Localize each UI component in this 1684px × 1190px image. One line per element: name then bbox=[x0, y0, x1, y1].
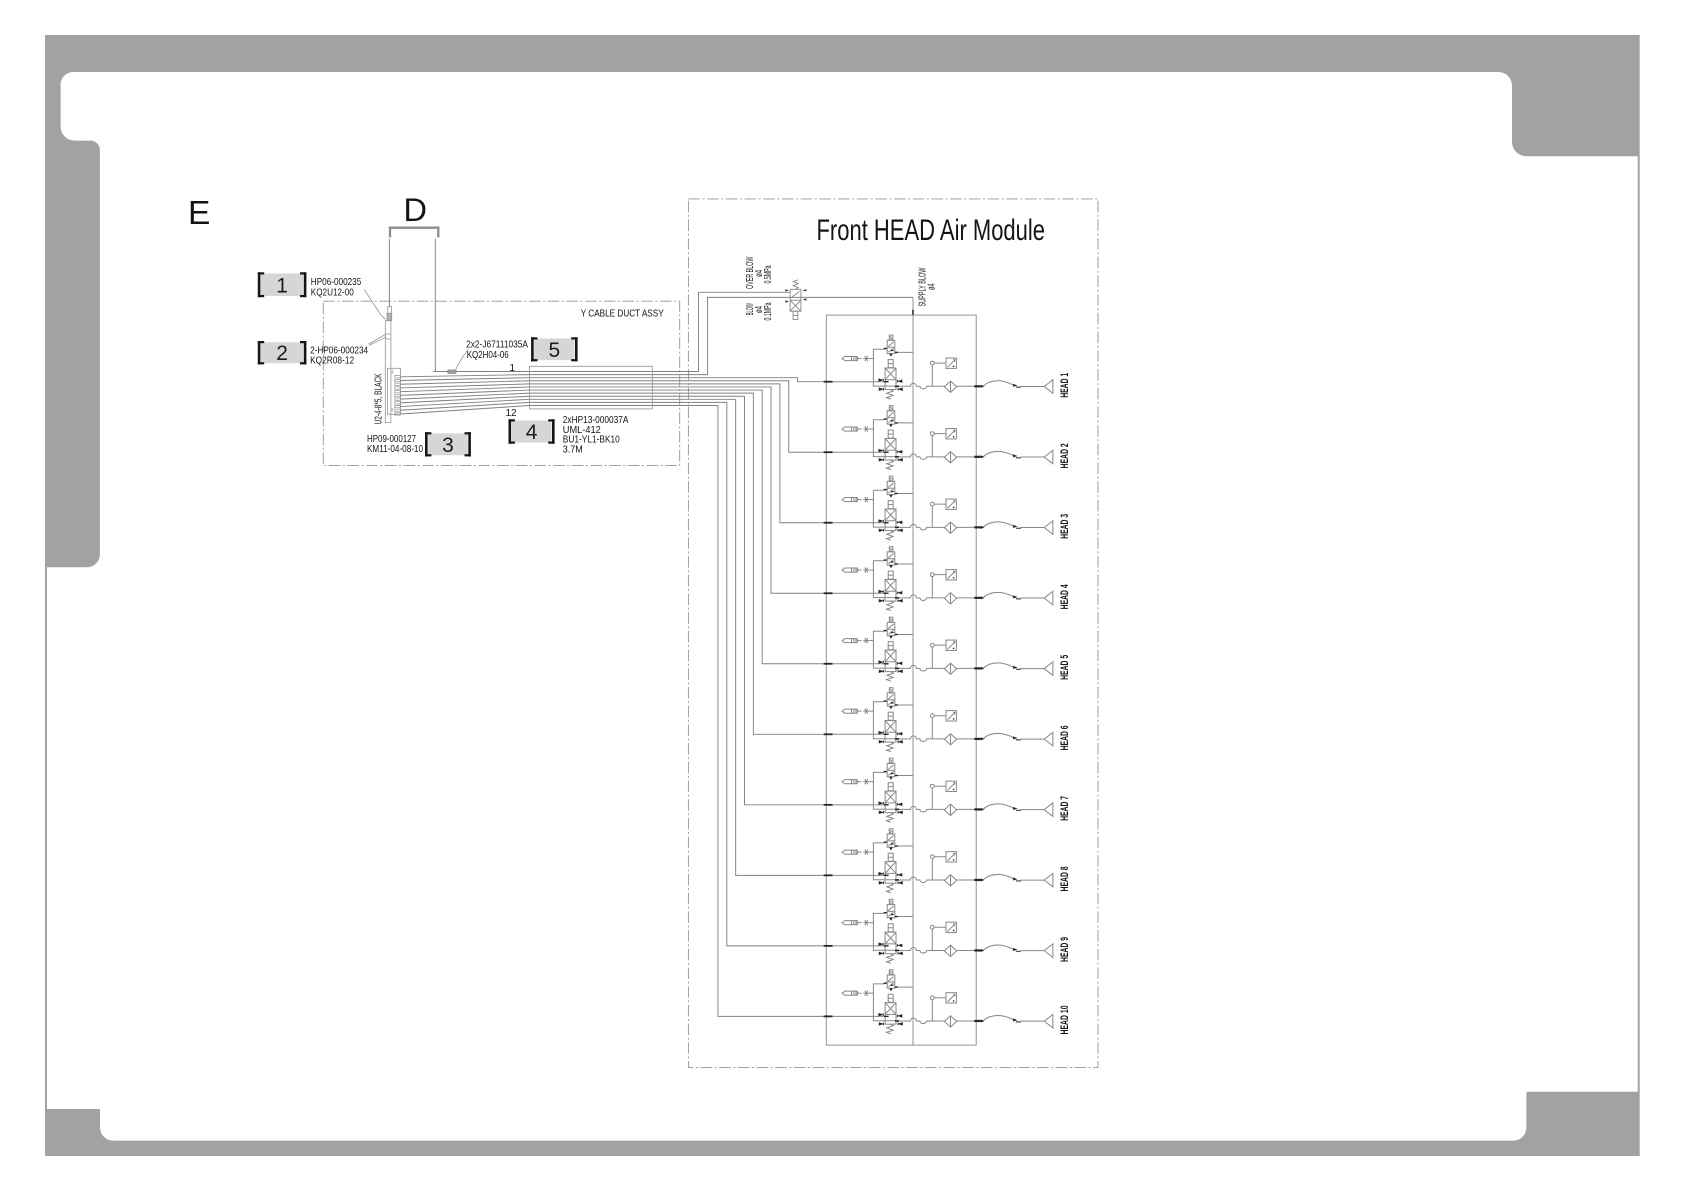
svg-text:KQ2R08-12: KQ2R08-12 bbox=[310, 354, 354, 366]
svg-text:HEAD 10: HEAD 10 bbox=[1059, 1005, 1071, 1034]
svg-text:HEAD 2: HEAD 2 bbox=[1059, 443, 1071, 468]
svg-text:HEAD 3: HEAD 3 bbox=[1059, 514, 1071, 539]
svg-text:KQ2U12-00: KQ2U12-00 bbox=[311, 286, 354, 298]
svg-text:E: E bbox=[188, 195, 210, 232]
svg-text:KM11-04-08-10: KM11-04-08-10 bbox=[367, 443, 423, 455]
svg-text:HEAD 5: HEAD 5 bbox=[1059, 655, 1071, 680]
svg-text:HEAD 9: HEAD 9 bbox=[1059, 937, 1071, 962]
svg-text:2: 2 bbox=[276, 342, 288, 365]
svg-text:ø4: ø4 bbox=[926, 283, 937, 290]
svg-text:12: 12 bbox=[506, 408, 518, 419]
svg-text:HEAD 7: HEAD 7 bbox=[1059, 796, 1071, 821]
svg-text:0.1MPa: 0.1MPa bbox=[763, 302, 774, 320]
svg-text:HEAD 8: HEAD 8 bbox=[1059, 866, 1071, 891]
svg-text:U2-4-8*5, BLACK: U2-4-8*5, BLACK bbox=[374, 373, 385, 424]
svg-text:KQ2H04-06: KQ2H04-06 bbox=[467, 349, 509, 361]
svg-text:3.7M: 3.7M bbox=[563, 443, 583, 455]
svg-text:HEAD 6: HEAD 6 bbox=[1059, 725, 1071, 750]
svg-text:3: 3 bbox=[442, 434, 454, 457]
svg-text:HEAD 4: HEAD 4 bbox=[1059, 584, 1071, 610]
svg-text:4: 4 bbox=[526, 421, 538, 444]
svg-text:5: 5 bbox=[549, 339, 561, 362]
svg-text:HEAD 1: HEAD 1 bbox=[1059, 373, 1071, 398]
svg-text:0.5MPa: 0.5MPa bbox=[763, 265, 774, 283]
svg-text:Front HEAD Air Module: Front HEAD Air Module bbox=[817, 214, 1046, 247]
svg-text:D: D bbox=[404, 192, 427, 228]
svg-text:Y CABLE DUCT ASSY: Y CABLE DUCT ASSY bbox=[581, 309, 664, 320]
svg-text:1: 1 bbox=[276, 274, 288, 297]
svg-text:1: 1 bbox=[510, 363, 516, 374]
